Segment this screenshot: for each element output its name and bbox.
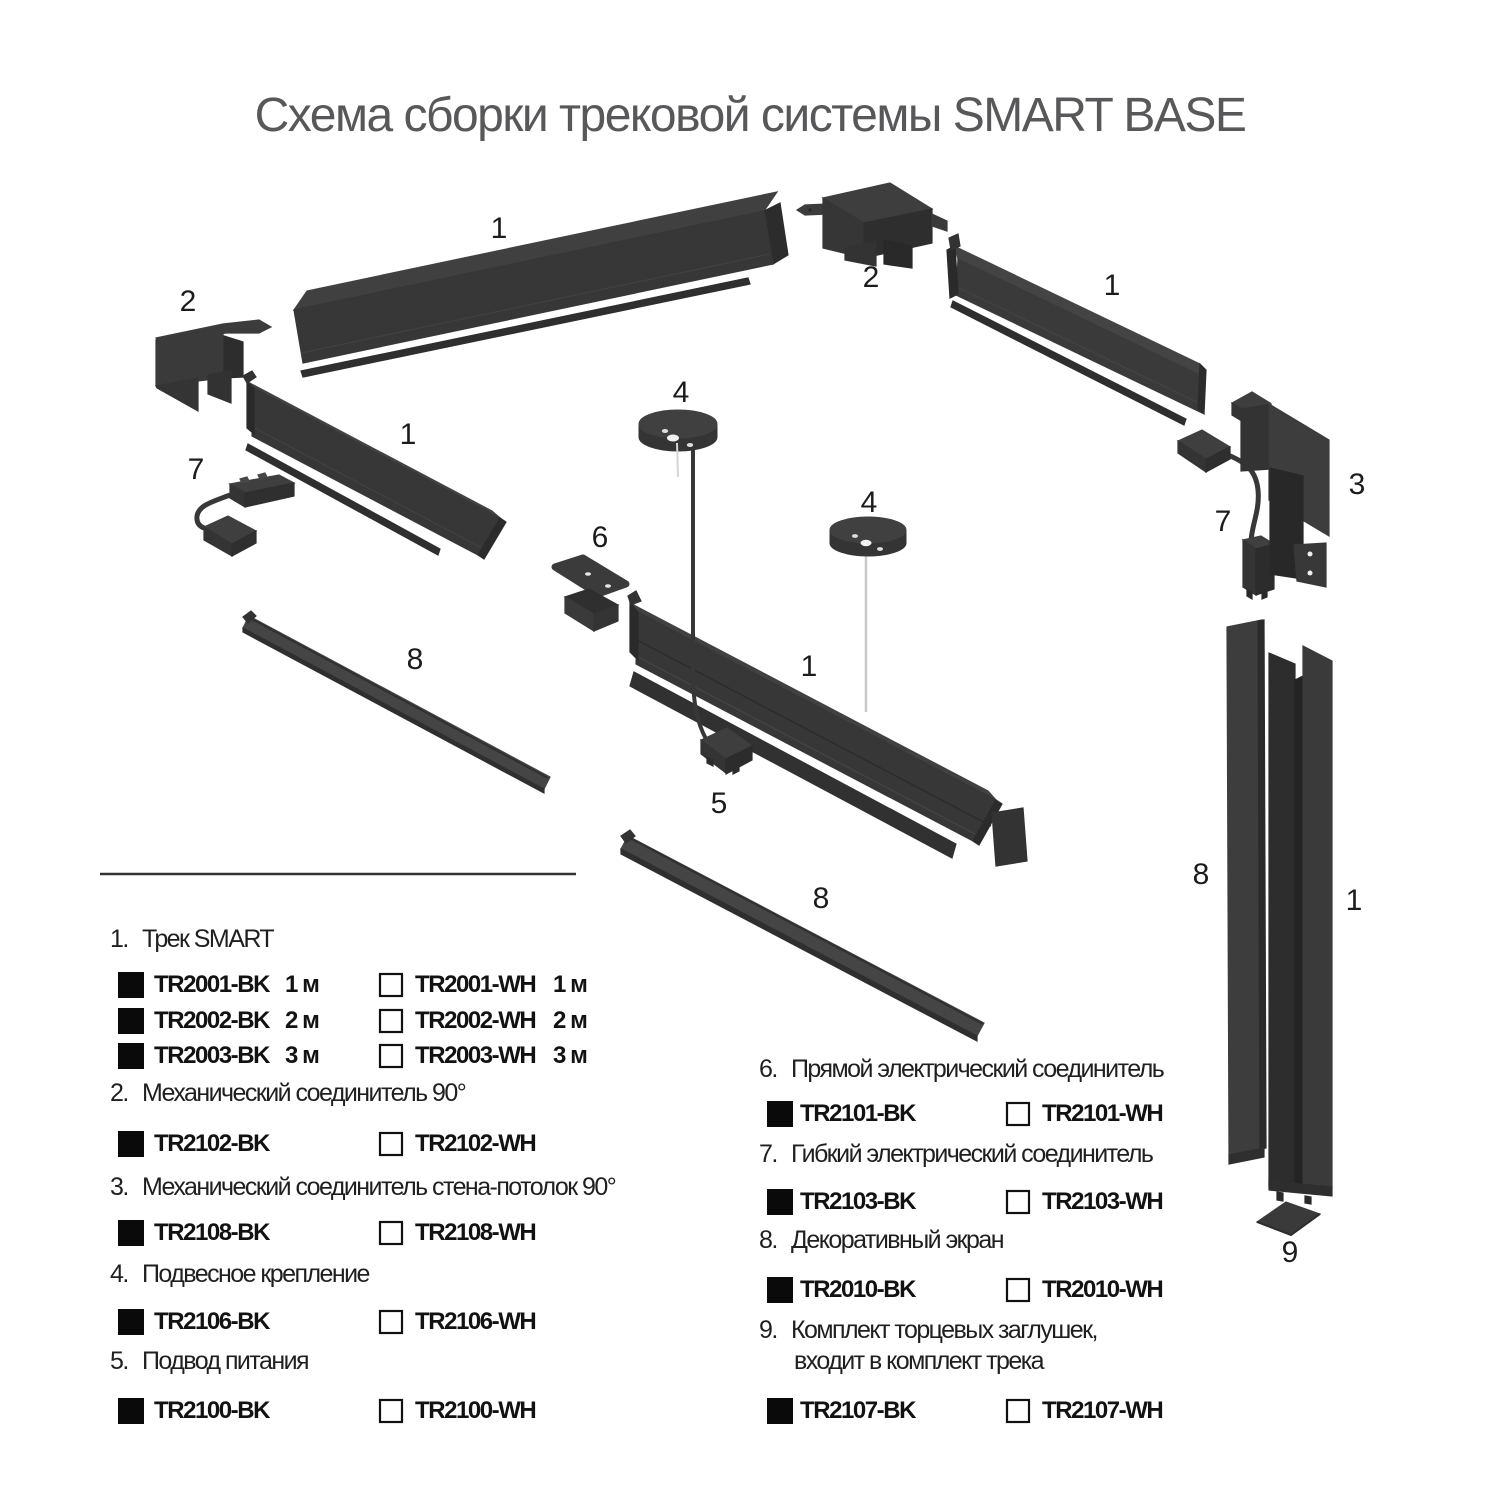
svg-text:5.: 5. — [110, 1347, 128, 1375]
svg-text:Схема сборки трековой системы: Схема сборки трековой системы SMART BASE — [255, 89, 1246, 142]
svg-text:TR2001-BK: TR2001-BK — [154, 971, 271, 998]
svg-text:1: 1 — [801, 650, 818, 683]
svg-text:TR2003-BK: TR2003-BK — [154, 1042, 271, 1069]
svg-text:3 м: 3 м — [285, 1042, 319, 1069]
svg-text:TR2010-BK: TR2010-BK — [800, 1276, 917, 1303]
svg-text:3: 3 — [1349, 468, 1366, 501]
svg-text:8: 8 — [407, 643, 424, 676]
svg-text:9: 9 — [1282, 1236, 1299, 1269]
svg-text:7.: 7. — [759, 1140, 777, 1168]
svg-text:TR2010-WH: TR2010-WH — [1042, 1276, 1162, 1303]
svg-text:1 м: 1 м — [285, 971, 319, 998]
svg-text:Подвесное крепление: Подвесное крепление — [142, 1260, 370, 1288]
svg-text:Трек SMART: Трек SMART — [142, 925, 274, 953]
svg-text:TR2003-WH: TR2003-WH — [415, 1042, 535, 1069]
svg-text:TR2108-WH: TR2108-WH — [415, 1219, 535, 1246]
svg-text:TR2100-BK: TR2100-BK — [154, 1397, 271, 1424]
svg-text:TR2101-WH: TR2101-WH — [1042, 1100, 1162, 1127]
svg-text:TR2001-WH: TR2001-WH — [415, 971, 535, 998]
svg-text:4.: 4. — [110, 1260, 128, 1288]
svg-text:8: 8 — [1193, 858, 1210, 891]
svg-text:Механический соединитель стена: Механический соединитель стена-потолок 9… — [142, 1173, 616, 1201]
svg-text:Прямой электрический соедините: Прямой электрический соединитель — [791, 1055, 1164, 1083]
svg-text:6: 6 — [592, 521, 609, 554]
svg-text:2: 2 — [863, 261, 880, 294]
svg-text:TR2103-WH: TR2103-WH — [1042, 1188, 1162, 1215]
svg-text:8.: 8. — [759, 1226, 777, 1254]
svg-text:TR2101-BK: TR2101-BK — [800, 1100, 917, 1127]
svg-text:7: 7 — [188, 453, 205, 486]
svg-text:7: 7 — [1215, 505, 1232, 538]
svg-text:2.: 2. — [110, 1079, 128, 1107]
svg-text:TR2103-BK: TR2103-BK — [800, 1188, 917, 1215]
svg-text:TR2002-WH: TR2002-WH — [415, 1007, 535, 1034]
svg-text:TR2100-WH: TR2100-WH — [415, 1397, 535, 1424]
svg-text:TR2107-BK: TR2107-BK — [800, 1397, 917, 1424]
svg-text:1: 1 — [1346, 884, 1363, 917]
svg-text:8: 8 — [813, 882, 830, 915]
svg-text:3 м: 3 м — [553, 1042, 587, 1069]
svg-text:TR2002-BK: TR2002-BK — [154, 1007, 271, 1034]
svg-text:1.: 1. — [110, 925, 128, 953]
svg-text:TR2108-BK: TR2108-BK — [154, 1219, 271, 1246]
svg-text:Гибкий электрический соедините: Гибкий электрический соединитель — [791, 1140, 1153, 1168]
svg-text:1 м: 1 м — [553, 971, 587, 998]
svg-text:TR2106-BK: TR2106-BK — [154, 1308, 271, 1335]
svg-text:5: 5 — [711, 787, 728, 820]
svg-text:входит в комплект трека: входит в комплект трека — [794, 1347, 1045, 1375]
svg-text:9.: 9. — [759, 1316, 777, 1344]
svg-text:TR2102-WH: TR2102-WH — [415, 1130, 535, 1157]
svg-text:4: 4 — [673, 376, 690, 409]
svg-text:Комплект торцевых заглушек,: Комплект торцевых заглушек, — [791, 1316, 1097, 1344]
svg-text:1: 1 — [491, 212, 508, 245]
svg-text:2: 2 — [180, 285, 197, 318]
svg-text:TR2107-WH: TR2107-WH — [1042, 1397, 1162, 1424]
svg-text:Механический соединитель 90°: Механический соединитель 90° — [142, 1079, 466, 1107]
svg-text:2 м: 2 м — [285, 1007, 319, 1034]
svg-text:1: 1 — [1104, 269, 1121, 302]
svg-text:Декоративный экран: Декоративный экран — [791, 1226, 1004, 1254]
svg-text:4: 4 — [861, 486, 878, 519]
svg-text:6.: 6. — [759, 1055, 777, 1083]
svg-text:3.: 3. — [110, 1173, 128, 1201]
svg-text:2 м: 2 м — [553, 1007, 587, 1034]
svg-text:1: 1 — [400, 418, 417, 451]
svg-text:TR2102-BK: TR2102-BK — [154, 1130, 271, 1157]
svg-text:TR2106-WH: TR2106-WH — [415, 1308, 535, 1335]
svg-text:Подвод питания: Подвод питания — [142, 1347, 308, 1375]
